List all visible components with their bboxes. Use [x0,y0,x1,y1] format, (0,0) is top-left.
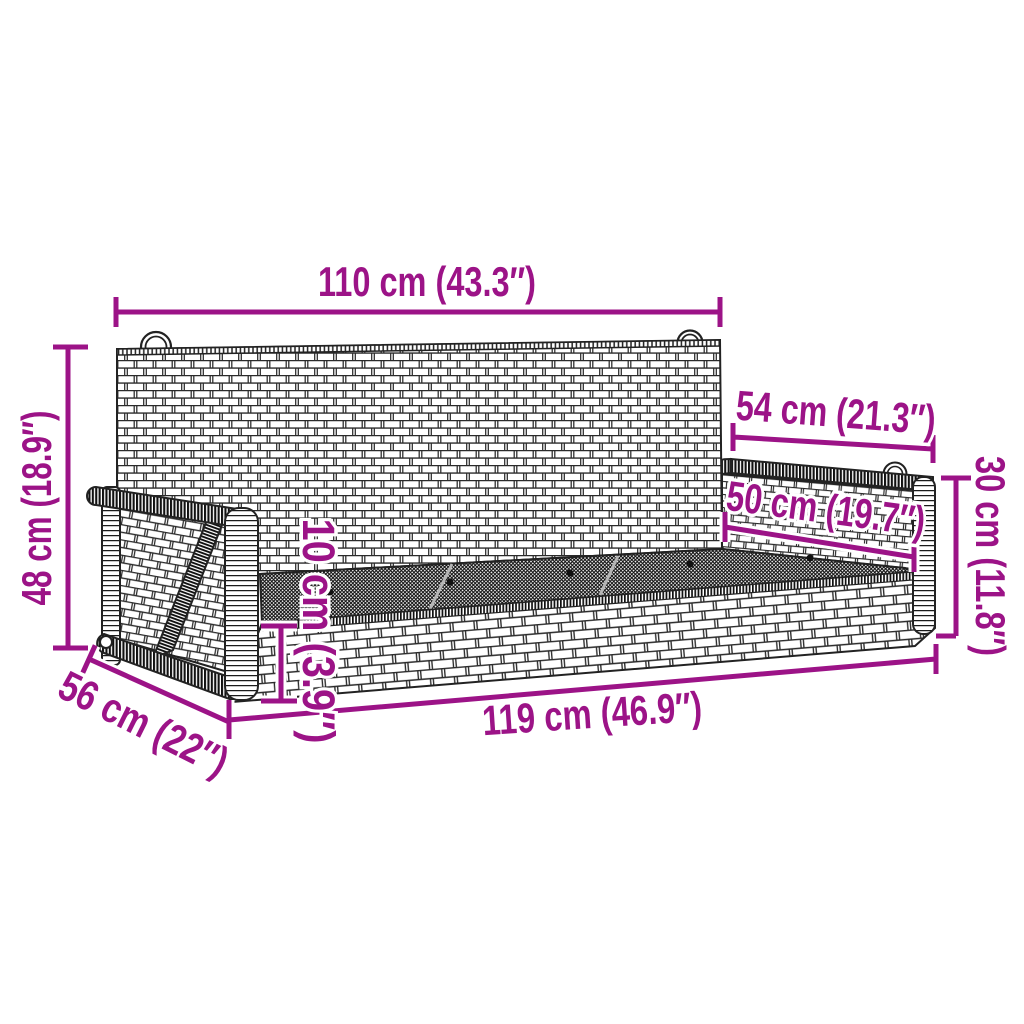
svg-text:30 cm (11.8″): 30 cm (11.8″) [967,456,1014,656]
svg-text:10 cm (3.9″): 10 cm (3.9″) [293,519,344,744]
svg-text:110 cm (43.3″): 110 cm (43.3″) [318,258,536,305]
svg-text:48 cm (18.9″): 48 cm (18.9″) [13,411,60,606]
